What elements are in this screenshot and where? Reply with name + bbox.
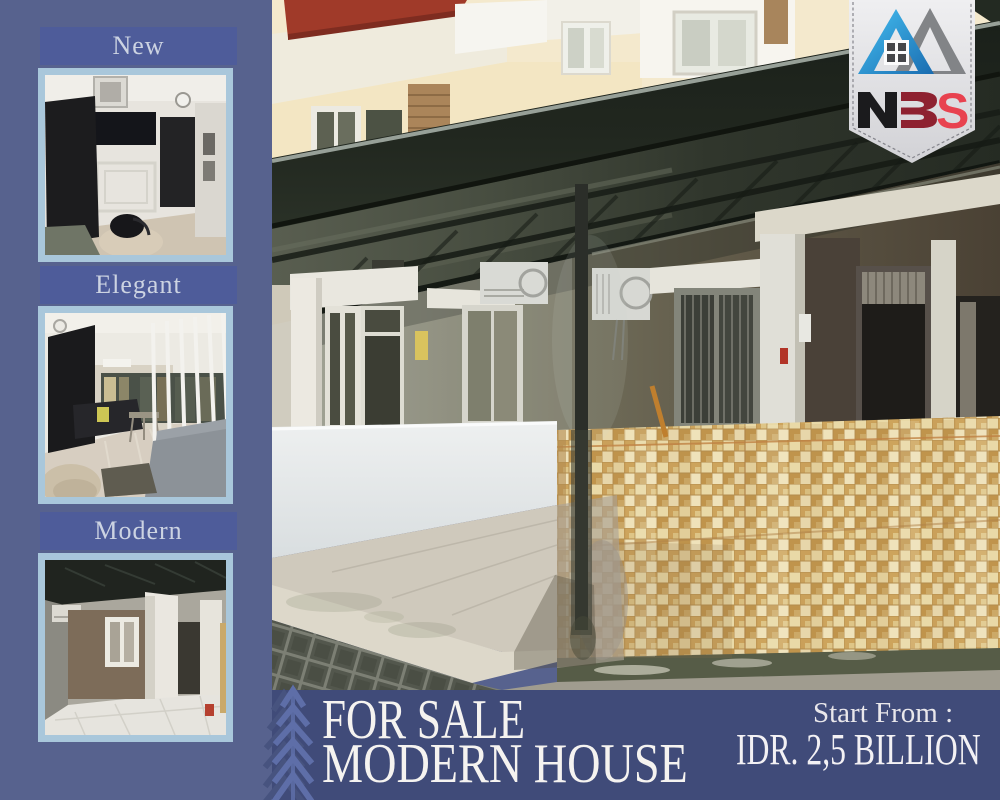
svg-text:S: S — [936, 83, 969, 139]
